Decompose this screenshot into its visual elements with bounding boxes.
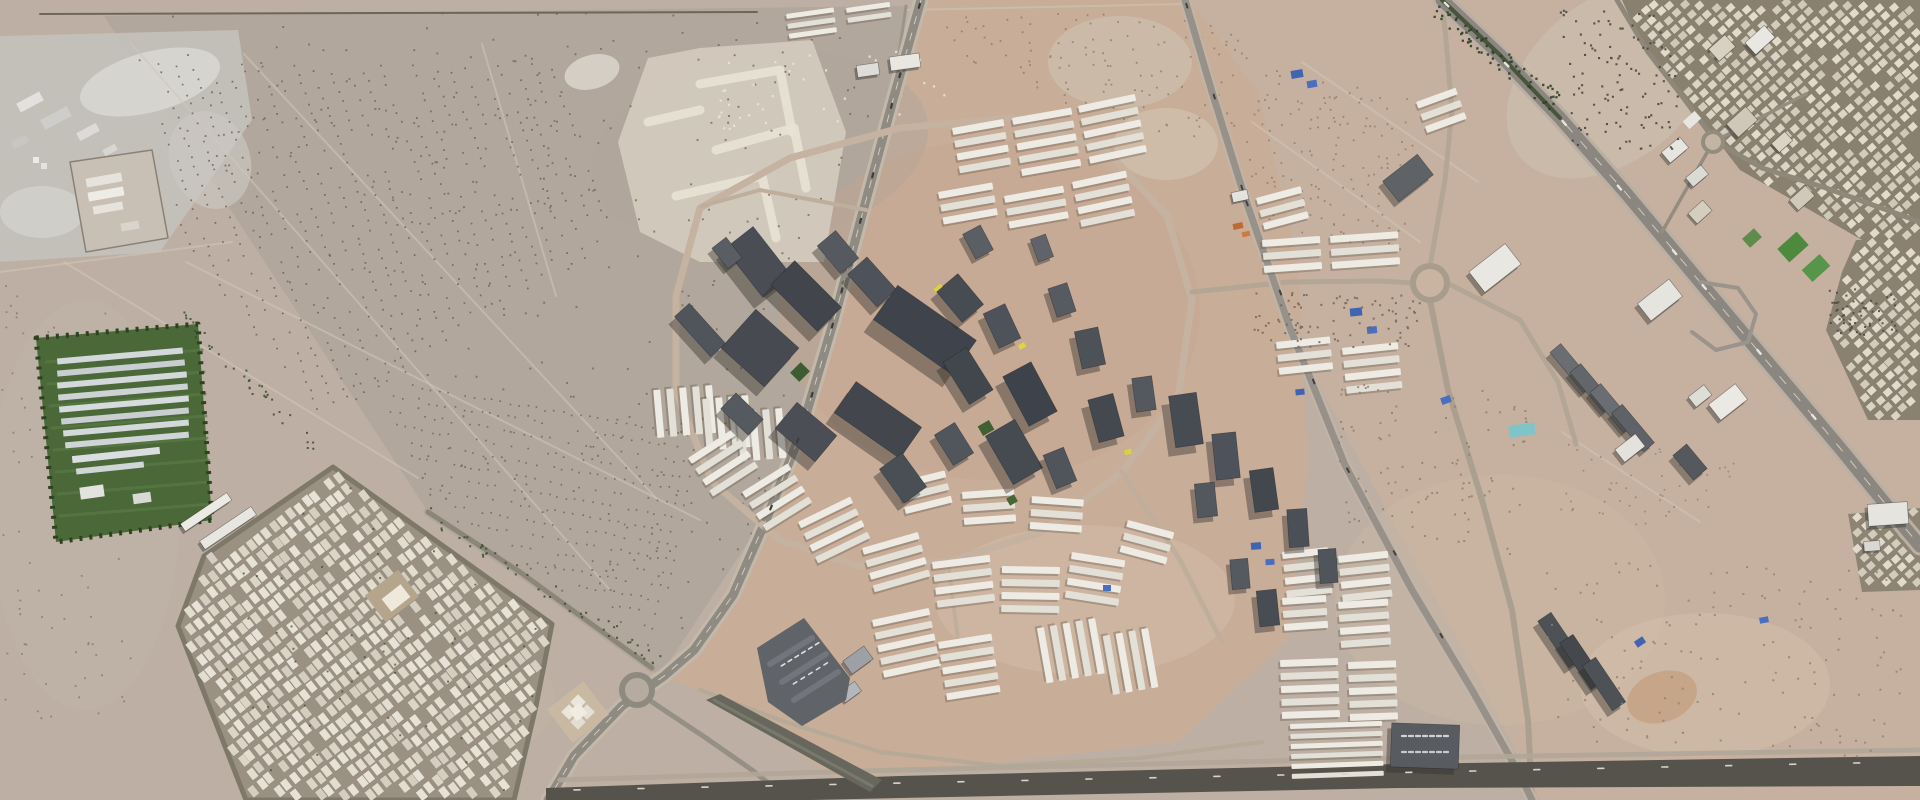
satellite-image	[0, 0, 1920, 800]
walled-compound	[70, 150, 168, 252]
satellite-scene-canvas	[0, 0, 1920, 800]
